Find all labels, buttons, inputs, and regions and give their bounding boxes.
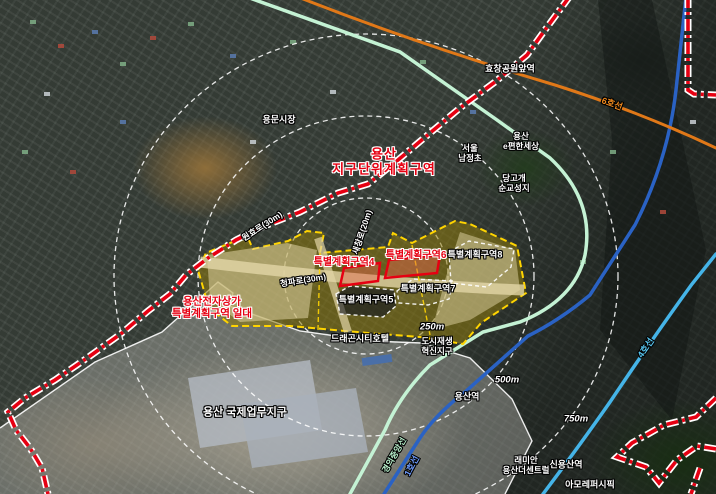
raemian-line1: 래미안	[503, 455, 550, 465]
label-zone5: 특별계획구역5	[339, 295, 394, 306]
label-ibd: 용산 국제업무지구	[203, 407, 287, 420]
label-ring-500m: 500m	[495, 374, 519, 385]
label-yongmun-market: 용문시장	[262, 115, 295, 126]
electronics-line1: 용산전자상가	[172, 296, 252, 308]
label-district-plan: 용산 지구단위계획구역	[332, 147, 436, 178]
label-epyeonhan: 용산 e편한세상	[503, 131, 539, 151]
danggogae-line2: 순교성지	[498, 183, 529, 193]
raemian-line2: 용산더센트럴	[503, 465, 550, 475]
label-dragon-city-hotel: 드래곤시티호텔	[331, 334, 389, 345]
label-sinyongsan-station: 신용산역	[549, 460, 582, 471]
label-zone4: 특별계획구역4	[314, 257, 375, 269]
urban-regen-line2: 혁신지구	[421, 346, 452, 356]
label-yongsan-station: 용산역	[455, 392, 480, 403]
epyeonhan-line2: e편한세상	[503, 141, 539, 151]
epyeonhan-line1: 용산	[503, 131, 539, 141]
rail-yard-area	[598, 0, 706, 420]
namjeong-line2: 남정초	[458, 153, 481, 163]
urban-regen-line1: 도시재생	[421, 336, 452, 346]
label-urban-regen: 도시재생 혁신지구	[421, 336, 452, 356]
boundary-northeast-casing	[688, 0, 716, 95]
boundary-northeast	[688, 0, 716, 95]
namjeong-line1: 서울	[458, 143, 481, 153]
label-amorepacific: 아모레퍼시픽	[565, 480, 615, 491]
danggogae-line1: 당고개	[498, 173, 529, 183]
electronics-line2: 특별계획구역 일대	[172, 308, 252, 320]
label-zone7: 특별계획구역7	[401, 284, 456, 295]
label-zone6: 특별계획구역6	[386, 250, 447, 262]
satellite-map: 용산 지구단위계획구역 용산전자상가 특별계획구역 일대 특별계획구역4 특별계…	[0, 0, 716, 494]
district-plan-line1: 용산	[332, 147, 436, 162]
label-ring-750m: 750m	[564, 413, 588, 424]
label-hyochang-station: 효창공원앞역	[485, 64, 535, 75]
label-zone8: 특별계획구역8	[448, 250, 503, 261]
label-danggogae-shrine: 당고개 순교성지	[498, 173, 529, 193]
label-ring-250m: 250m	[420, 321, 444, 332]
label-electronics-zone: 용산전자상가 특별계획구역 일대	[172, 296, 252, 321]
district-plan-line2: 지구단위계획구역	[332, 162, 436, 177]
label-namjeong-school: 서울 남정초	[458, 143, 481, 163]
label-raemian: 래미안 용산더센트럴	[503, 455, 550, 475]
